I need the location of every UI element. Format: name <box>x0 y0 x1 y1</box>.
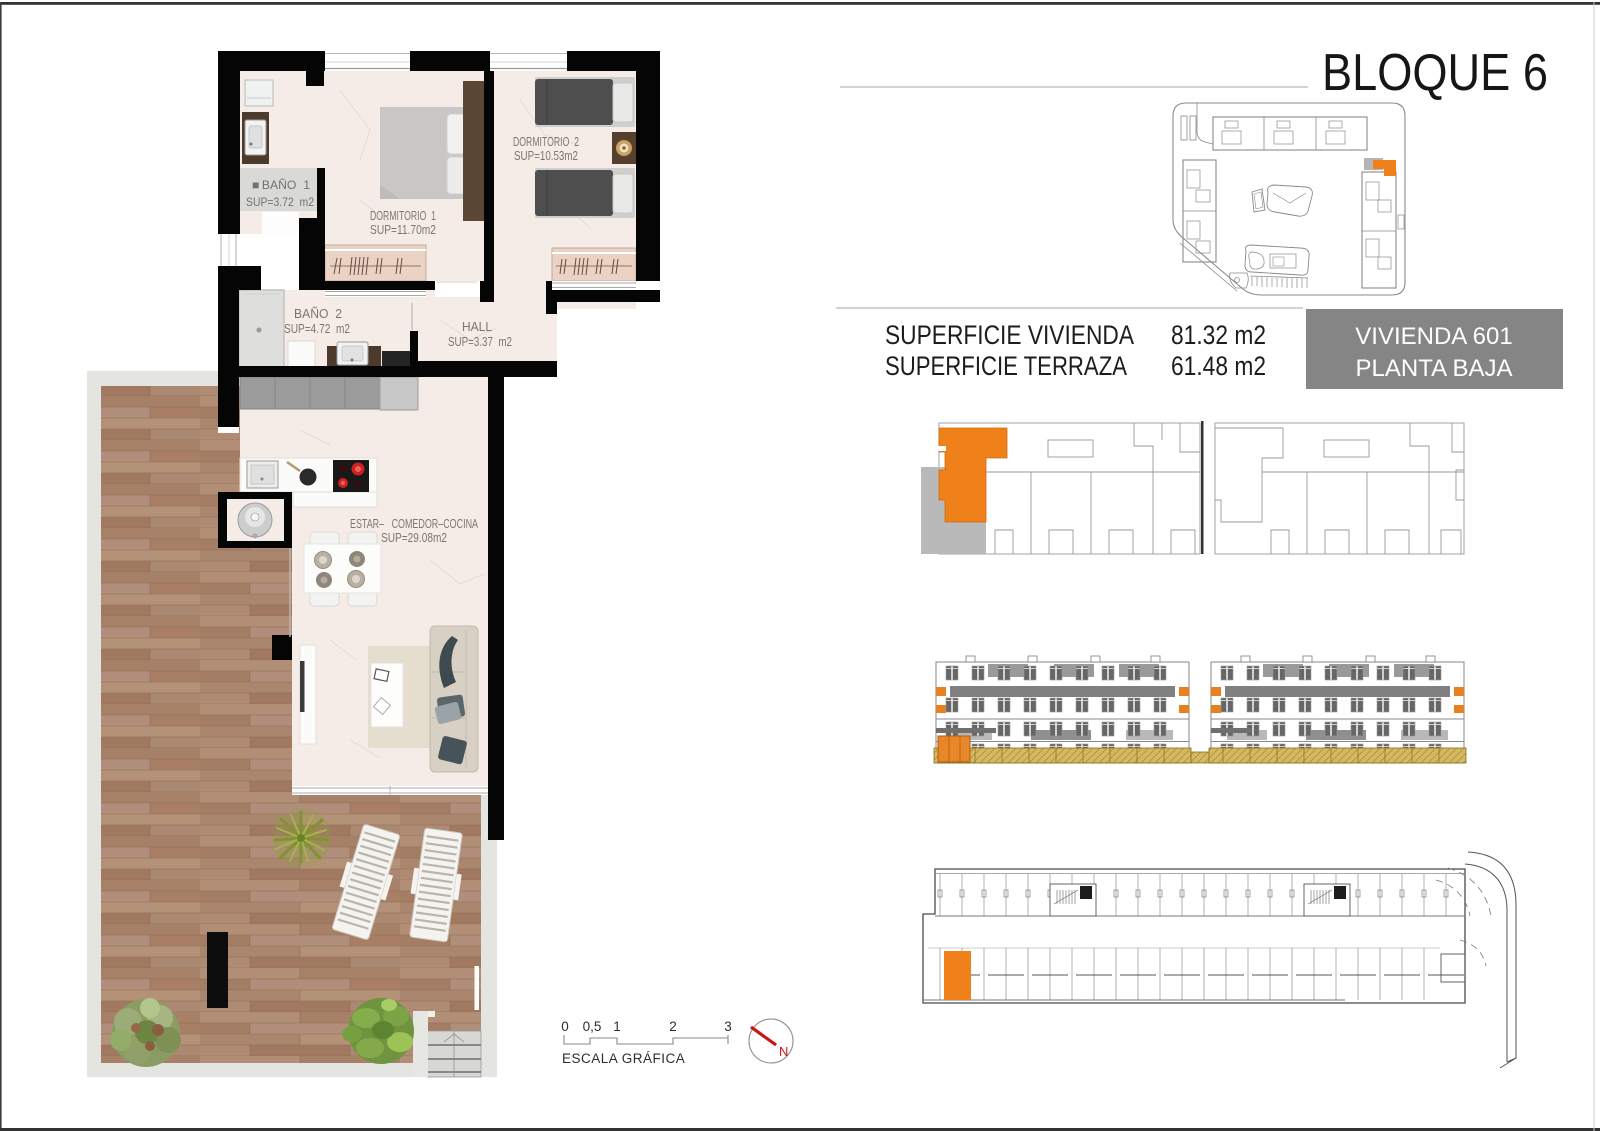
svg-text:ESTAR– COMEDOR–COCINA: ESTAR– COMEDOR–COCINA <box>350 517 478 531</box>
svg-text:SUP=3.37 m2: SUP=3.37 m2 <box>448 335 512 349</box>
svg-text:VIVIENDA 601: VIVIENDA 601 <box>1355 323 1512 350</box>
svg-text:SUP=4.72 m2: SUP=4.72 m2 <box>284 322 350 336</box>
svg-text:SUP=10.53m2: SUP=10.53m2 <box>514 149 578 163</box>
svg-text:3: 3 <box>724 1019 732 1034</box>
svg-text:61.48 m2: 61.48 m2 <box>1171 351 1266 381</box>
svg-text:SUP=29.08m2: SUP=29.08m2 <box>381 531 447 545</box>
svg-text:2: 2 <box>669 1019 677 1034</box>
svg-text:BLOQUE 6: BLOQUE 6 <box>1322 44 1548 102</box>
svg-text:N: N <box>779 1044 788 1059</box>
svg-text:SUP=11.70m2: SUP=11.70m2 <box>370 223 436 237</box>
svg-text:BAÑO 2: BAÑO 2 <box>294 307 342 321</box>
svg-text:■ BAÑO 1: ■ BAÑO 1 <box>252 178 310 192</box>
svg-text:DORMITORIO 2: DORMITORIO 2 <box>513 135 579 149</box>
svg-text:HALL: HALL <box>462 320 492 334</box>
svg-text:ESCALA GRÁFICA: ESCALA GRÁFICA <box>562 1051 685 1066</box>
svg-text:PLANTA BAJA: PLANTA BAJA <box>1356 355 1513 382</box>
svg-text:0,5: 0,5 <box>583 1019 602 1034</box>
svg-text:SUPERFICIE VIVIENDA: SUPERFICIE VIVIENDA <box>885 320 1134 350</box>
svg-text:DORMITORIO 1: DORMITORIO 1 <box>370 209 436 223</box>
svg-text:SUP=3.72 m2: SUP=3.72 m2 <box>246 195 314 209</box>
svg-text:81.32 m2: 81.32 m2 <box>1171 320 1266 350</box>
svg-text:1: 1 <box>613 1019 621 1034</box>
svg-text:SUPERFICIE TERRAZA: SUPERFICIE TERRAZA <box>885 351 1127 381</box>
svg-text:0: 0 <box>561 1019 569 1034</box>
